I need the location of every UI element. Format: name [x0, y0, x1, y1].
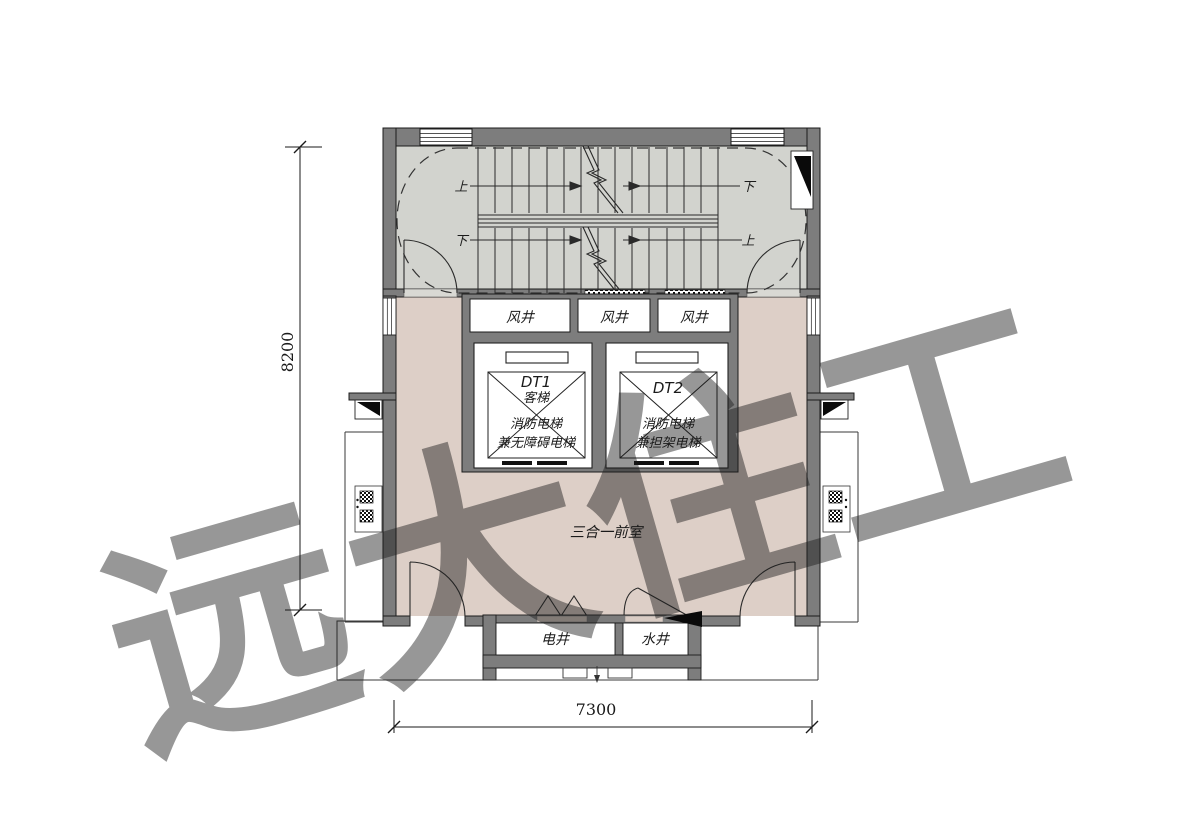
wall-left-upper — [383, 128, 396, 296]
elevator-dt1-sill — [506, 352, 568, 363]
wall-bottom-4 — [795, 616, 820, 626]
floor-plan-canvas: 上 下 下 上 风井 风井 风井 DT — [0, 0, 1198, 831]
stair-label-upper-left: 上 — [454, 180, 468, 195]
stair-door-threshold-right — [747, 289, 800, 297]
stair-label-upper-right: 下 — [741, 180, 756, 195]
window-top-right — [731, 129, 784, 145]
window-top-left — [420, 129, 472, 145]
floor-plan-page: 上 下 下 上 风井 风井 风井 DT — [0, 0, 1198, 831]
window-left-wall — [383, 298, 396, 335]
dimension-left-value: 8200 — [278, 332, 297, 373]
air-shaft-3-label: 风井 — [680, 310, 710, 326]
dimension-bottom-value: 7300 — [576, 700, 617, 719]
stair-label-lower-left: 下 — [454, 234, 469, 249]
air-shaft-1-label: 风井 — [506, 310, 536, 326]
stair-door-threshold-left — [404, 289, 457, 297]
wall-stub-left — [349, 393, 396, 400]
elevator-dt1-id-label: DT1 — [521, 373, 551, 391]
stair-label-lower-right: 上 — [741, 234, 755, 249]
air-shaft-2-label: 风井 — [600, 310, 630, 326]
